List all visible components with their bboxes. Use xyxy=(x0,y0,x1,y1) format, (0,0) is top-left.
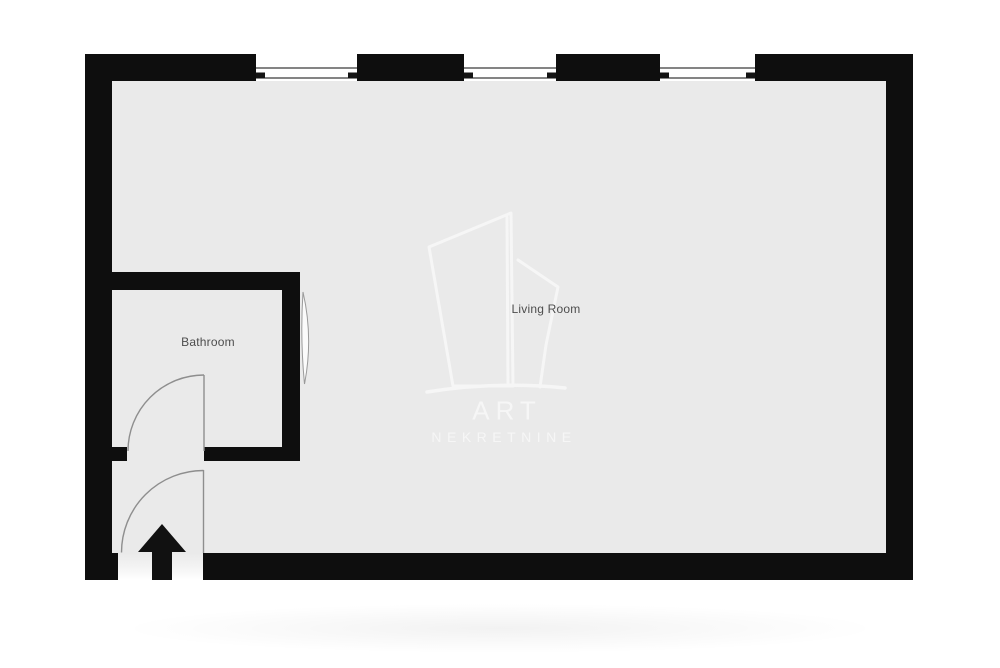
wall-bottom xyxy=(203,553,913,580)
wall-top-segment-3 xyxy=(556,54,660,81)
window-2 xyxy=(464,54,556,81)
floor-slab xyxy=(85,54,913,580)
watermark-subtitle-text: NEKRETNINE xyxy=(431,429,576,445)
window-end-tick xyxy=(746,73,755,79)
window-end-tick xyxy=(547,73,556,79)
bathroom-wall-right xyxy=(282,272,300,461)
floor-plan-drawing xyxy=(0,0,1000,668)
bathroom-wall-bottom-right xyxy=(204,447,300,461)
plan-drop-shadow xyxy=(20,596,980,668)
window-end-tick xyxy=(464,73,473,79)
bathroom-wall-top xyxy=(110,272,300,290)
bathroom-wall-bottom-left xyxy=(85,447,127,461)
watermark-tower-inner-line xyxy=(507,217,508,386)
wall-top-segment-2 xyxy=(357,54,464,81)
window-end-tick xyxy=(348,73,357,79)
wall-bottom-corner xyxy=(85,553,118,580)
watermark-brand-text: ART xyxy=(472,396,542,427)
floor-plan: Living Room Bathroom ART NEKRETNINE xyxy=(0,0,1000,668)
window-1 xyxy=(256,54,357,81)
room-label-bathroom: Bathroom xyxy=(181,335,235,349)
window-end-tick xyxy=(256,73,265,79)
room-label-living-room: Living Room xyxy=(512,302,581,316)
windows xyxy=(256,54,755,81)
window-3 xyxy=(660,54,755,81)
window-end-tick xyxy=(660,73,669,79)
wall-left xyxy=(85,54,112,580)
wall-right xyxy=(886,54,913,580)
